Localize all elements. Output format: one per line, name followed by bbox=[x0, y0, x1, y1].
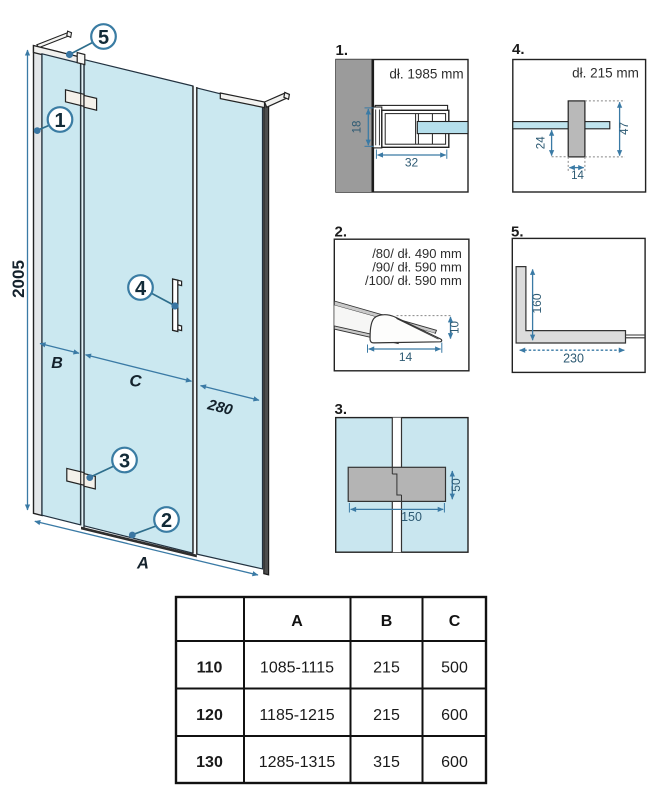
svg-text:3.: 3. bbox=[335, 401, 348, 418]
svg-text:24: 24 bbox=[536, 136, 548, 149]
svg-text:32: 32 bbox=[405, 156, 419, 170]
svg-text:215: 215 bbox=[373, 707, 400, 724]
svg-text:4: 4 bbox=[135, 278, 147, 300]
svg-text:C: C bbox=[449, 613, 461, 630]
svg-text:50: 50 bbox=[449, 478, 463, 492]
svg-text:215: 215 bbox=[373, 660, 400, 677]
svg-text:500: 500 bbox=[441, 660, 468, 677]
svg-text:2005: 2005 bbox=[9, 260, 28, 298]
svg-text:5: 5 bbox=[98, 27, 109, 49]
svg-text:1.: 1. bbox=[336, 42, 349, 59]
svg-text:14: 14 bbox=[399, 350, 413, 364]
svg-text:150: 150 bbox=[401, 510, 422, 524]
svg-text:600: 600 bbox=[441, 707, 468, 724]
svg-text:dł. 1985 mm: dł. 1985 mm bbox=[389, 67, 463, 82]
svg-text:130: 130 bbox=[196, 754, 223, 771]
svg-text:C: C bbox=[129, 372, 142, 391]
svg-text:/100/ dł. 590 mm: /100/ dł. 590 mm bbox=[365, 273, 462, 288]
svg-text:3: 3 bbox=[119, 450, 130, 472]
svg-text:160: 160 bbox=[530, 293, 544, 313]
svg-text:A: A bbox=[136, 555, 149, 573]
svg-text:600: 600 bbox=[441, 754, 468, 771]
svg-text:47: 47 bbox=[619, 122, 631, 135]
svg-text:B: B bbox=[51, 355, 63, 372]
svg-text:230: 230 bbox=[563, 352, 584, 366]
svg-text:10: 10 bbox=[450, 321, 462, 334]
svg-text:120: 120 bbox=[196, 707, 223, 724]
svg-text:1185-1215: 1185-1215 bbox=[259, 707, 334, 724]
svg-text:dł. 215 mm: dł. 215 mm bbox=[572, 66, 639, 81]
svg-text:2: 2 bbox=[161, 510, 172, 532]
svg-text:4.: 4. bbox=[512, 41, 525, 58]
svg-text:A: A bbox=[291, 613, 303, 630]
svg-text:14: 14 bbox=[571, 170, 584, 182]
svg-text:B: B bbox=[381, 613, 393, 630]
svg-text:18: 18 bbox=[352, 121, 364, 134]
svg-text:1085-1115: 1085-1115 bbox=[260, 660, 334, 677]
svg-text:315: 315 bbox=[373, 754, 400, 771]
svg-text:110: 110 bbox=[197, 660, 223, 677]
svg-text:1: 1 bbox=[54, 110, 65, 132]
svg-text:1285-1315: 1285-1315 bbox=[259, 754, 336, 771]
svg-text:2.: 2. bbox=[335, 224, 348, 241]
